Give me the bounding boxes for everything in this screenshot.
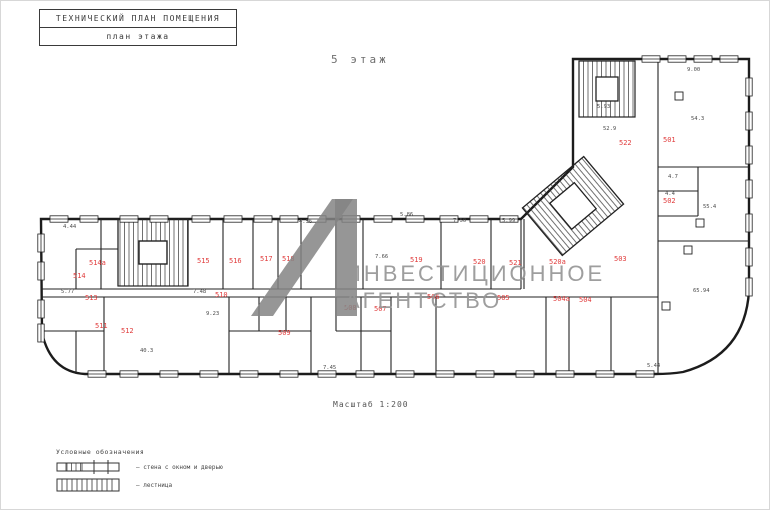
stairs-symbol-icon	[56, 478, 128, 492]
window-icon	[80, 216, 98, 222]
wall-window-symbol-icon	[56, 460, 128, 474]
room-number-507: 507	[374, 305, 387, 313]
room-number-514: 514	[73, 272, 86, 280]
window-icon	[374, 216, 392, 222]
room-number-509: 509	[278, 329, 291, 337]
room-number-511: 511	[95, 322, 108, 330]
dimension-text: 5.93	[597, 104, 610, 110]
dimension-text: 5.99	[502, 218, 515, 224]
room-number-508: 508	[344, 304, 357, 312]
window-icon	[746, 278, 752, 296]
window-icon	[396, 371, 414, 377]
room-number-513: 513	[85, 294, 98, 302]
window-icon	[746, 146, 752, 164]
title-line-1: ТЕХНИЧЕСКИЙ ПЛАН ПОМЕЩЕНИЯ	[40, 10, 236, 28]
window-icon	[694, 56, 712, 62]
window-icon	[746, 248, 752, 266]
dimension-text: 9.23	[206, 311, 219, 317]
window-icon	[38, 324, 44, 342]
window-icon	[50, 216, 68, 222]
room-number-504: 504	[579, 296, 592, 304]
title-line-2: план этажа	[40, 28, 236, 45]
legend: Условные обозначения – стена с окном и д…	[56, 448, 223, 496]
window-icon	[240, 371, 258, 377]
window-icon	[192, 216, 210, 222]
dimension-text: 5.77	[61, 289, 74, 295]
window-icon	[720, 56, 738, 62]
dimension-text: 54.3	[691, 116, 704, 122]
dimension-text: 9.00	[687, 67, 700, 73]
window-icon	[38, 234, 44, 252]
legend-title: Условные обозначения	[56, 448, 223, 456]
floor-label: 5 этаж	[331, 53, 389, 66]
window-icon	[38, 262, 44, 280]
window-icon	[746, 180, 752, 198]
dimension-text: 5.86	[400, 212, 413, 218]
room-number-520а: 520а	[549, 258, 566, 266]
window-icon	[318, 371, 336, 377]
dimension-text: 4.44	[63, 224, 77, 230]
room-number-521: 521	[509, 259, 522, 267]
title-block: ТЕХНИЧЕСКИЙ ПЛАН ПОМЕЩЕНИЯ план этажа	[39, 9, 237, 46]
room-number-502: 502	[663, 197, 676, 205]
staircase-left	[118, 219, 188, 286]
scale-label: Масштаб 1:200	[333, 400, 409, 409]
room-number-520: 520	[473, 258, 486, 266]
dimension-text: 52.9	[603, 126, 616, 132]
window-icon	[746, 214, 752, 232]
dimension-text: 7.48	[193, 289, 206, 295]
room-number-514а: 514а	[89, 259, 106, 267]
window-icon	[120, 216, 138, 222]
window-icon	[746, 112, 752, 130]
room-number-503: 503	[614, 255, 627, 263]
window-icon	[642, 56, 660, 62]
dimension-text: 4.7	[668, 174, 678, 180]
window-icon	[516, 371, 534, 377]
room-number-516: 516	[229, 257, 242, 265]
window-icon	[476, 371, 494, 377]
window-icon	[636, 371, 654, 377]
window-icon	[38, 300, 44, 318]
legend-item-wall-window: – стена с окном и дверью	[56, 460, 223, 474]
drawing-sheet: ТЕХНИЧЕСКИЙ ПЛАН ПОМЕЩЕНИЯ план этажа 5 …	[0, 0, 770, 510]
room-number-519: 519	[410, 256, 423, 264]
room-number-510: 510	[215, 291, 228, 299]
dimension-text: 7.50	[453, 218, 466, 224]
window-icon	[200, 371, 218, 377]
floor-plan-drawing: 4.445.777.484.565.867.505.997.669.2340.3…	[1, 1, 770, 510]
window-icon	[150, 216, 168, 222]
dimension-text: 7.45	[323, 365, 336, 371]
window-icon	[280, 216, 298, 222]
room-number-512: 512	[121, 327, 134, 335]
dimension-text: 7.66	[375, 254, 388, 260]
window-icon	[224, 216, 242, 222]
room-number-506: 506	[427, 293, 440, 301]
window-icon	[556, 371, 574, 377]
window-icon	[746, 78, 752, 96]
room-number-501: 501	[663, 136, 676, 144]
window-icon	[280, 371, 298, 377]
room-number-505: 505	[497, 294, 510, 302]
room-number-504а: 504а	[553, 295, 570, 303]
window-icon	[342, 216, 360, 222]
building-outline	[41, 59, 749, 374]
window-icon	[668, 56, 686, 62]
window-icon	[596, 371, 614, 377]
legend-label-wall-window: – стена с окном и дверью	[136, 464, 223, 471]
window-icon	[160, 371, 178, 377]
room-number-517: 517	[260, 255, 273, 263]
legend-item-stairs: – лестница	[56, 478, 223, 492]
room-number-515: 515	[197, 257, 210, 265]
dimension-text: 65.94	[693, 288, 710, 294]
window-icon	[254, 216, 272, 222]
window-icon	[88, 371, 106, 377]
room-number-522: 522	[619, 139, 632, 147]
window-icon	[470, 216, 488, 222]
dimension-text: 55.4	[703, 204, 717, 210]
legend-label-stairs: – лестница	[136, 482, 172, 489]
room-number-518: 518	[282, 255, 295, 263]
dimension-text: 5.44	[647, 363, 661, 369]
window-icon	[120, 371, 138, 377]
window-icon	[436, 371, 454, 377]
window-icon	[356, 371, 374, 377]
dimension-text: 4.56	[299, 219, 312, 225]
dimension-text: 40.3	[140, 348, 153, 354]
